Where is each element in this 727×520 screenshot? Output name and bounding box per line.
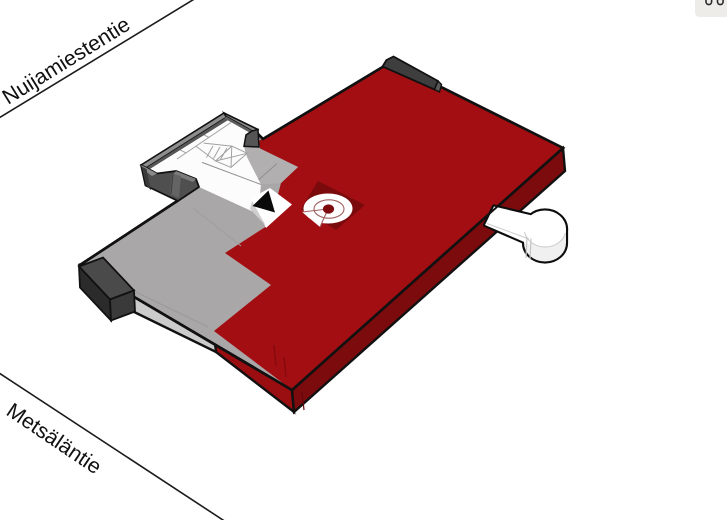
svg-text:Nuijamiestentie: Nuijamiestentie [0,12,134,109]
svg-text:Metsäläntie: Metsäläntie [2,398,106,479]
